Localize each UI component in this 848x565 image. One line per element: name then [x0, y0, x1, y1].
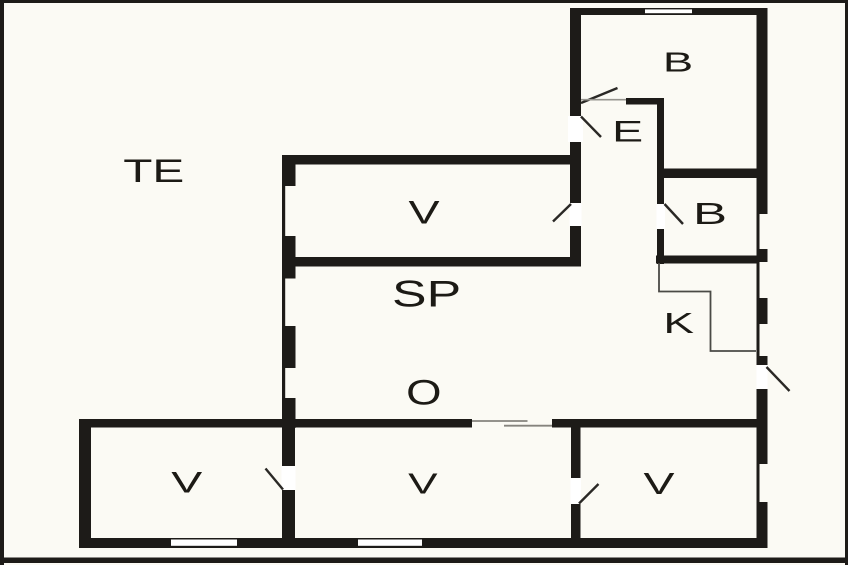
svg-text:B: B	[693, 197, 727, 231]
svg-text:V: V	[643, 467, 675, 502]
svg-text:SP: SP	[392, 273, 461, 315]
svg-text:V: V	[408, 467, 438, 499]
svg-text:V: V	[408, 194, 439, 230]
svg-text:TE: TE	[123, 153, 184, 190]
svg-text:B: B	[663, 46, 693, 77]
svg-text:K: K	[663, 308, 694, 340]
svg-text:V: V	[171, 466, 202, 499]
svg-text:E: E	[612, 115, 643, 148]
svg-text:O: O	[406, 372, 441, 412]
